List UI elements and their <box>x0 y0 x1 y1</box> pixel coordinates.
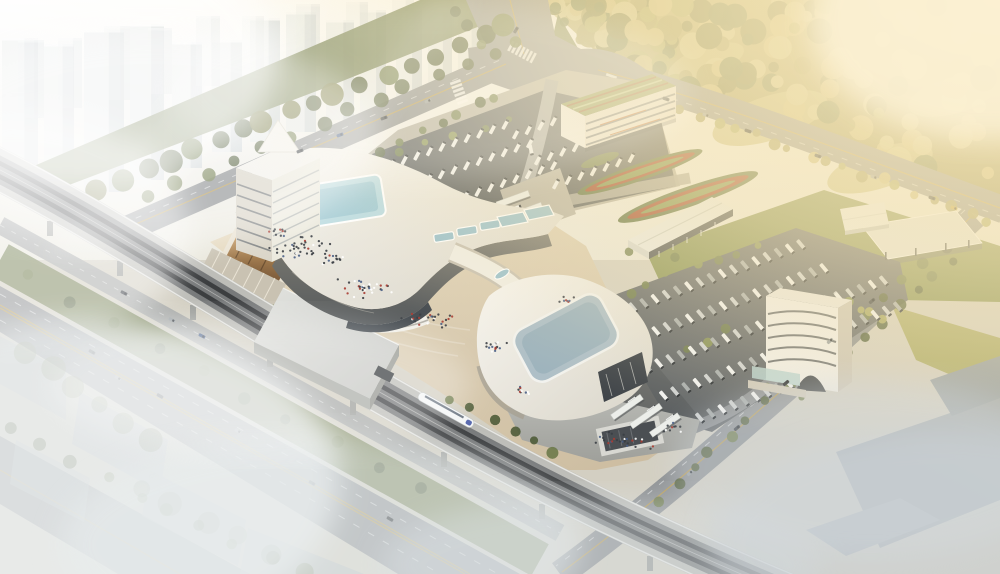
architectural-rendering <box>0 0 1000 574</box>
aerial-scene <box>0 0 1000 574</box>
atmosphere <box>0 0 1000 574</box>
